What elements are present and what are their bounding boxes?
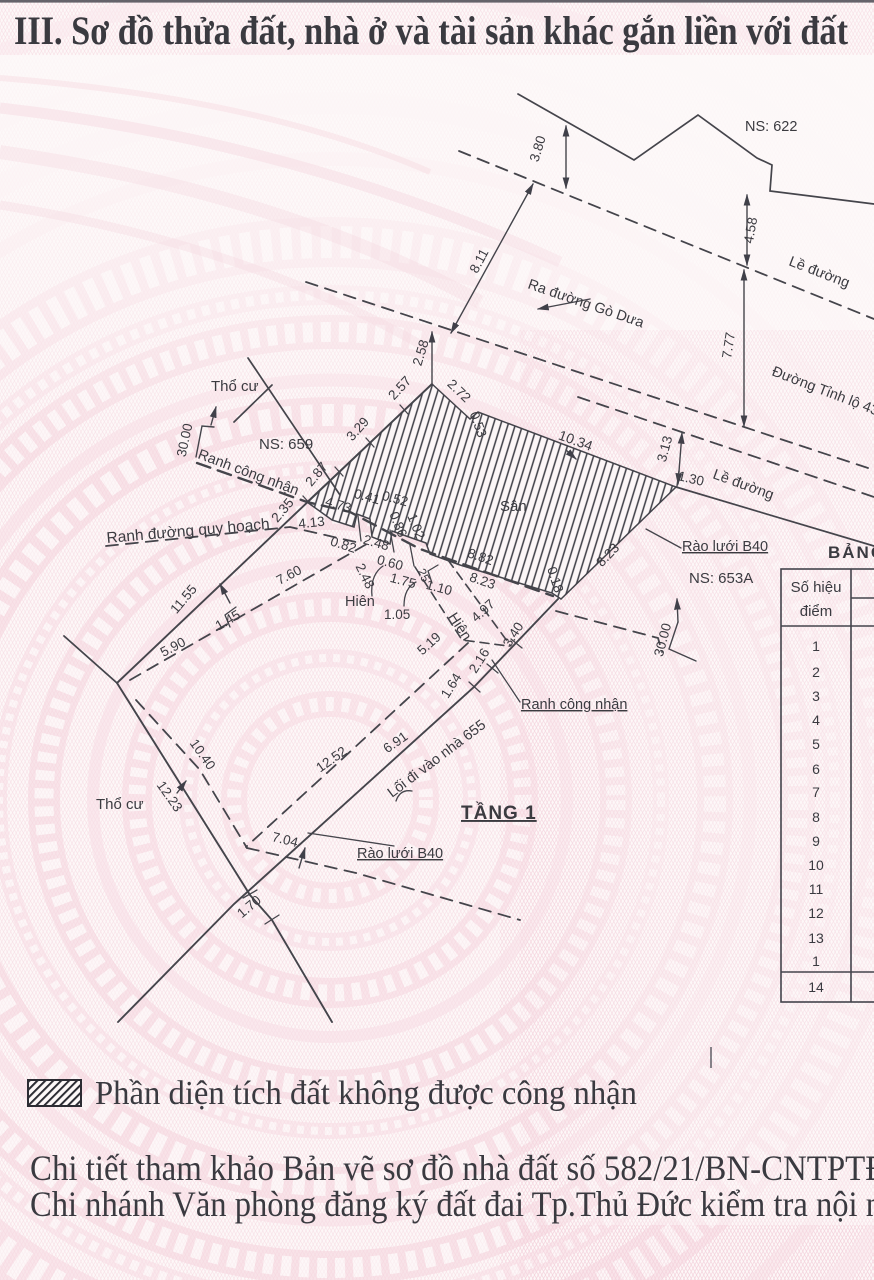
svg-text:Hiên: Hiên [345, 594, 375, 610]
svg-text:10: 10 [808, 857, 824, 873]
svg-text:Rào lưới B40: Rào lưới B40 [682, 539, 768, 555]
svg-text:1: 1 [812, 953, 820, 969]
svg-text:Phần diện tích đất không được: Phần diện tích đất không được công nhận [95, 1075, 637, 1112]
svg-text:NS: 653A: NS: 653A [689, 570, 753, 587]
svg-text:TẦNG 1: TẦNG 1 [461, 802, 537, 824]
svg-text:7: 7 [812, 784, 820, 800]
svg-text:Rào lưới B40: Rào lưới B40 [357, 846, 443, 862]
svg-text:III. Sơ đồ thửa đất, nhà ở và: III. Sơ đồ thửa đất, nhà ở và tài sản kh… [14, 8, 849, 53]
svg-text:BẢNG L: BẢNG L [828, 543, 874, 562]
svg-text:NS: 622: NS: 622 [745, 119, 797, 135]
svg-text:Thổ cư: Thổ cư [211, 378, 259, 395]
svg-text:9: 9 [812, 833, 820, 849]
svg-text:5: 5 [812, 736, 820, 752]
svg-text:11: 11 [809, 881, 824, 897]
svg-text:2: 2 [812, 664, 820, 680]
svg-text:Chi tiết tham khảo Bản vẽ sơ đ: Chi tiết tham khảo Bản vẽ sơ đồ nhà đất … [30, 1148, 874, 1188]
svg-text:14: 14 [808, 979, 824, 995]
svg-text:Thổ cư: Thổ cư [96, 796, 144, 813]
svg-text:Số hiệu: Số hiệu [791, 579, 842, 596]
svg-text:NS: 659: NS: 659 [259, 436, 313, 453]
svg-text:6: 6 [812, 761, 820, 777]
svg-text:12: 12 [808, 905, 824, 921]
svg-text:4.13: 4.13 [298, 514, 326, 532]
svg-text:điểm: điểm [800, 603, 833, 620]
svg-text:Chi nhánh Văn phòng đăng ký đấ: Chi nhánh Văn phòng đăng ký đất đai Tp.T… [30, 1184, 874, 1224]
svg-text:13: 13 [808, 930, 824, 946]
svg-text:Sân: Sân [500, 498, 527, 515]
svg-text:Ranh công nhận: Ranh công nhận [521, 697, 627, 713]
svg-text:1: 1 [812, 638, 820, 654]
svg-text:8: 8 [812, 809, 820, 825]
svg-text:3: 3 [812, 688, 820, 704]
svg-text:4: 4 [812, 712, 820, 728]
svg-text:1.05: 1.05 [384, 607, 410, 622]
